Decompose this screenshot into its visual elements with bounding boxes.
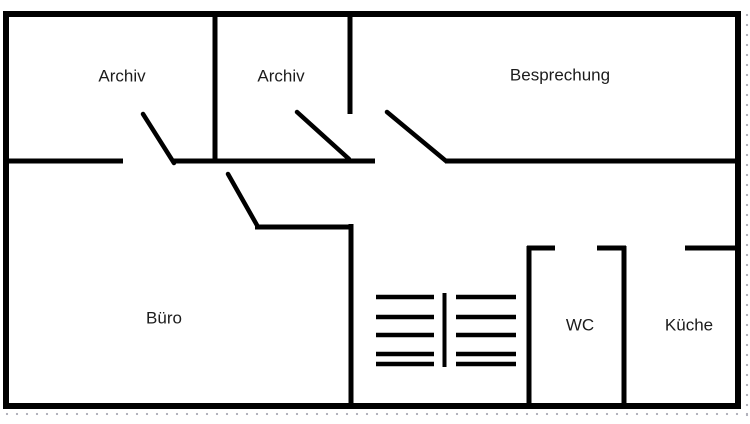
room-label-buero: Büro — [146, 310, 182, 327]
room-label-archiv-2: Archiv — [257, 68, 304, 85]
room-label-besprechung: Besprechung — [510, 67, 610, 84]
door-swing-archiv-1 — [143, 114, 174, 163]
door-swing-archiv-2 — [297, 112, 349, 159]
door-swing-besprechung — [387, 112, 446, 161]
door-swings — [143, 112, 446, 227]
floor-plan-canvas: Archiv Archiv Besprechung Büro WC Küche — [0, 0, 750, 424]
room-label-archiv-1: Archiv — [98, 68, 145, 85]
room-label-wc: WC — [566, 317, 594, 334]
stairs-icon — [376, 293, 516, 367]
room-label-kueche: Küche — [665, 317, 713, 334]
floor-plan-drawing — [0, 0, 750, 424]
door-swing-buero — [228, 174, 258, 227]
